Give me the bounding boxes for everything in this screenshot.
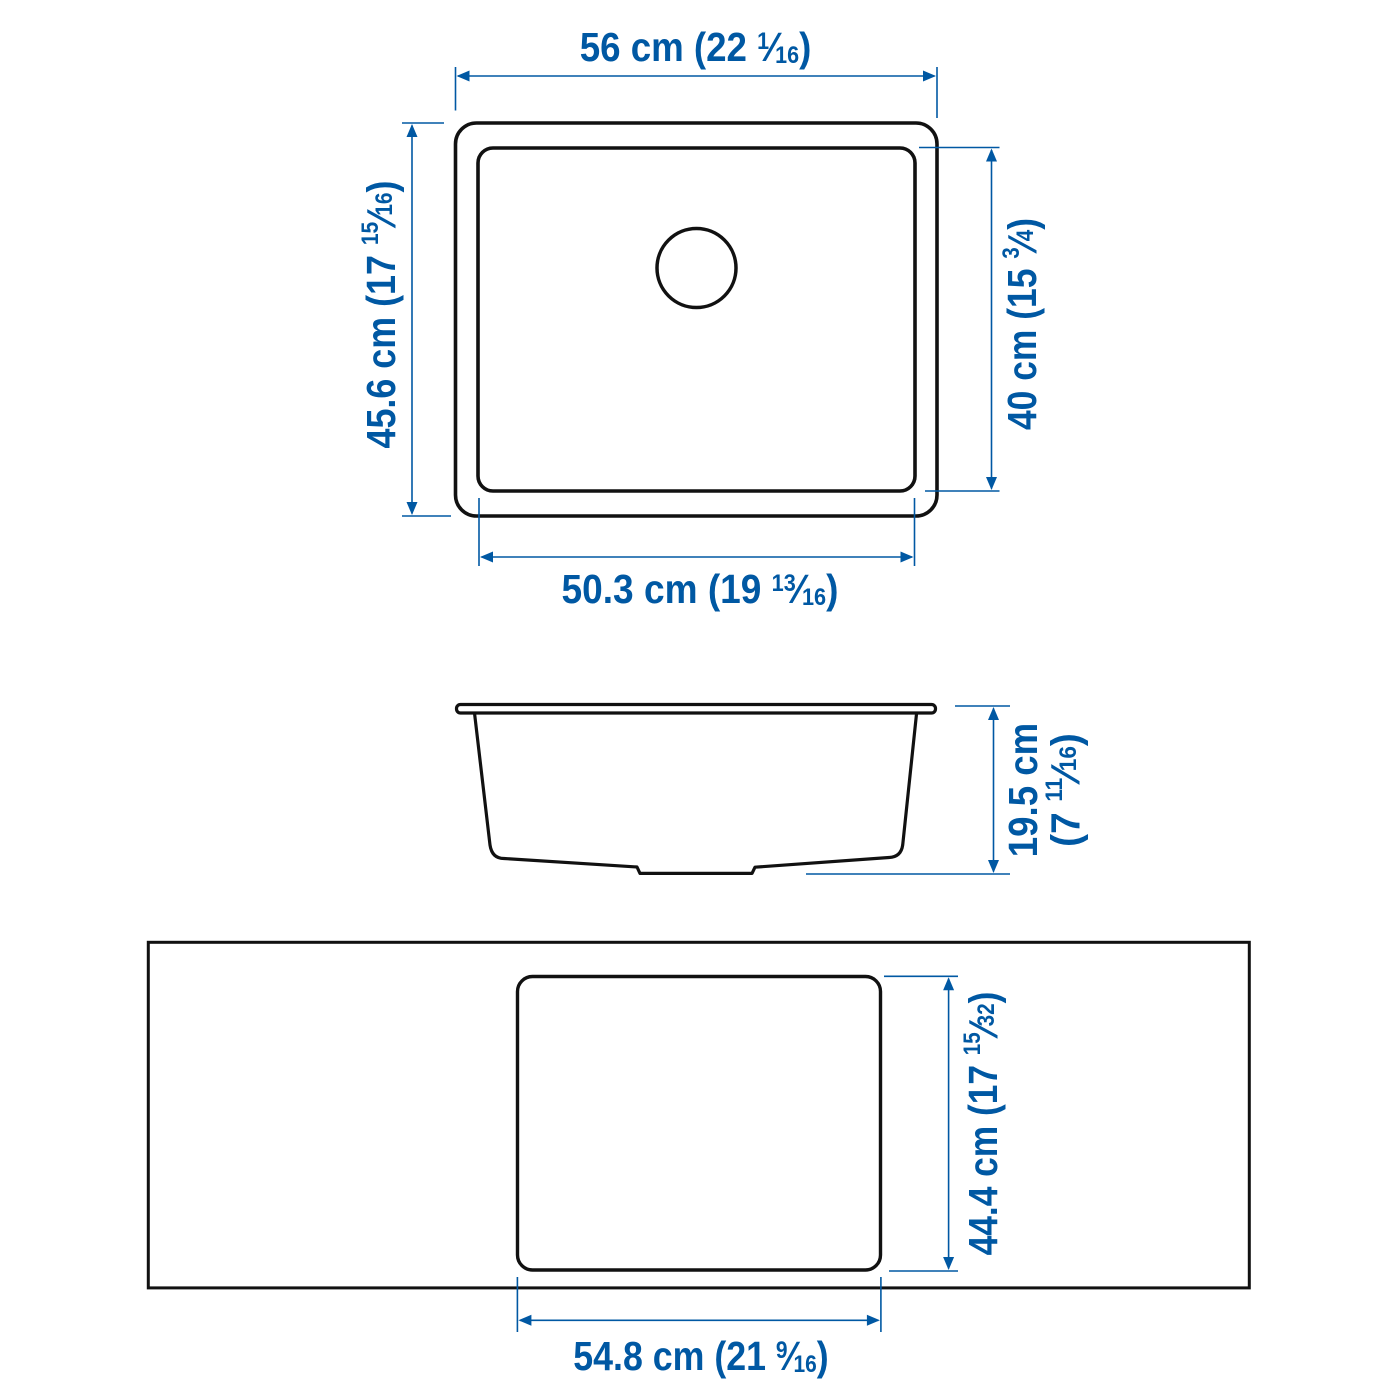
- svg-text:44.4 cm (17 15⁄32): 44.4 cm (17 15⁄32): [958, 992, 1006, 1256]
- svg-text:50.3 cm (19 13⁄16): 50.3 cm (19 13⁄16): [562, 567, 839, 612]
- svg-text:45.6 cm (17 15⁄16): 45.6 cm (17 15⁄16): [356, 180, 404, 448]
- svg-text:54.8 cm (21 9⁄16): 54.8 cm (21 9⁄16): [573, 1334, 828, 1380]
